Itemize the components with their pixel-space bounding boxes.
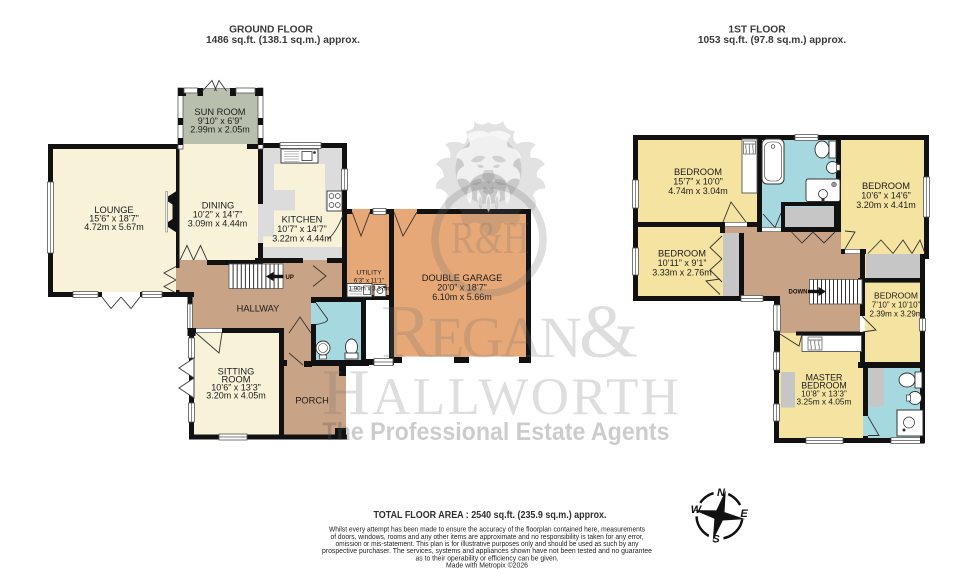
svg-text:10’7” x 14’7”: 10’7” x 14’7”	[277, 224, 327, 234]
svg-text:1486 sq.ft. (138.1 sq.m.) appr: 1486 sq.ft. (138.1 sq.m.) approx.	[206, 35, 360, 46]
svg-text:2.99m x 2.05m: 2.99m x 2.05m	[190, 125, 250, 135]
svg-text:4.72m x 5.67m: 4.72m x 5.67m	[84, 222, 144, 232]
svg-text:3.09m x 4.44m: 3.09m x 4.44m	[188, 219, 248, 229]
svg-text:BEDROOM: BEDROOM	[658, 249, 706, 259]
svg-text:1ST FLOOR: 1ST FLOOR	[728, 25, 786, 36]
svg-text:prospective purchaser. The ser: prospective purchaser. The services, sys…	[322, 548, 652, 555]
svg-text:The Professional Estate Agents: The Professional Estate Agents	[323, 418, 670, 446]
svg-text:as to their operability or eff: as to their operability or efficiency ca…	[416, 555, 559, 562]
svg-text:4.74m x 3.04m: 4.74m x 3.04m	[668, 186, 728, 196]
svg-text:UP: UP	[286, 275, 294, 281]
svg-text:7’10” x 10’10”: 7’10” x 10’10”	[872, 301, 921, 310]
svg-text:1053 sq.ft. (97.8 sq.m.) appro: 1053 sq.ft. (97.8 sq.m.) approx.	[698, 35, 847, 46]
svg-text:3.20m x 4.05m: 3.20m x 4.05m	[206, 391, 266, 401]
svg-text:2.39m x 3.29m: 2.39m x 3.29m	[870, 310, 923, 319]
svg-text:omission or mis-statement. Thi: omission or mis-statement. This plan is …	[336, 541, 639, 548]
svg-text:TOTAL FLOOR AREA : 2540 sq.ft.: TOTAL FLOOR AREA : 2540 sq.ft. (235.9 sq…	[374, 510, 607, 521]
svg-text:3.20m x 4.41m: 3.20m x 4.41m	[856, 200, 916, 210]
svg-text:10’11” x 9’1”: 10’11” x 9’1”	[658, 258, 707, 268]
svg-text:KITCHEN: KITCHEN	[282, 215, 323, 225]
svg-text:3.22m x 4.44m: 3.22m x 4.44m	[272, 234, 332, 244]
svg-text:E: E	[740, 508, 748, 520]
svg-text:S: S	[712, 534, 720, 546]
svg-text:3.33m x 2.76m: 3.33m x 2.76m	[652, 268, 712, 278]
svg-text:DOWN: DOWN	[789, 290, 808, 296]
svg-text:UTILITY: UTILITY	[356, 270, 382, 277]
svg-text:BEDROOM: BEDROOM	[862, 181, 910, 191]
svg-text:GROUND FLOOR: GROUND FLOOR	[229, 25, 313, 36]
svg-text:Whilst every attempt has been: Whilst every attempt has been made to en…	[329, 527, 645, 534]
svg-text:N: N	[717, 487, 726, 499]
svg-text:3.25m x 4.05m: 3.25m x 4.05m	[797, 397, 852, 407]
svg-text:Made with Metropix ©2026: Made with Metropix ©2026	[446, 561, 528, 569]
svg-text:HALLWAY: HALLWAY	[237, 304, 280, 314]
svg-text:6’3” x 11’1”: 6’3” x 11’1”	[354, 278, 384, 285]
svg-text:BEDROOM: BEDROOM	[874, 291, 918, 301]
svg-text:BEDROOM: BEDROOM	[674, 167, 722, 177]
svg-text:W: W	[691, 504, 703, 516]
svg-text:of doors, windows, rooms and a: of doors, windows, rooms and any other i…	[331, 534, 644, 541]
svg-text:15’7” x 10’0”: 15’7” x 10’0”	[673, 177, 723, 187]
svg-text:R&H: R&H	[451, 212, 529, 263]
